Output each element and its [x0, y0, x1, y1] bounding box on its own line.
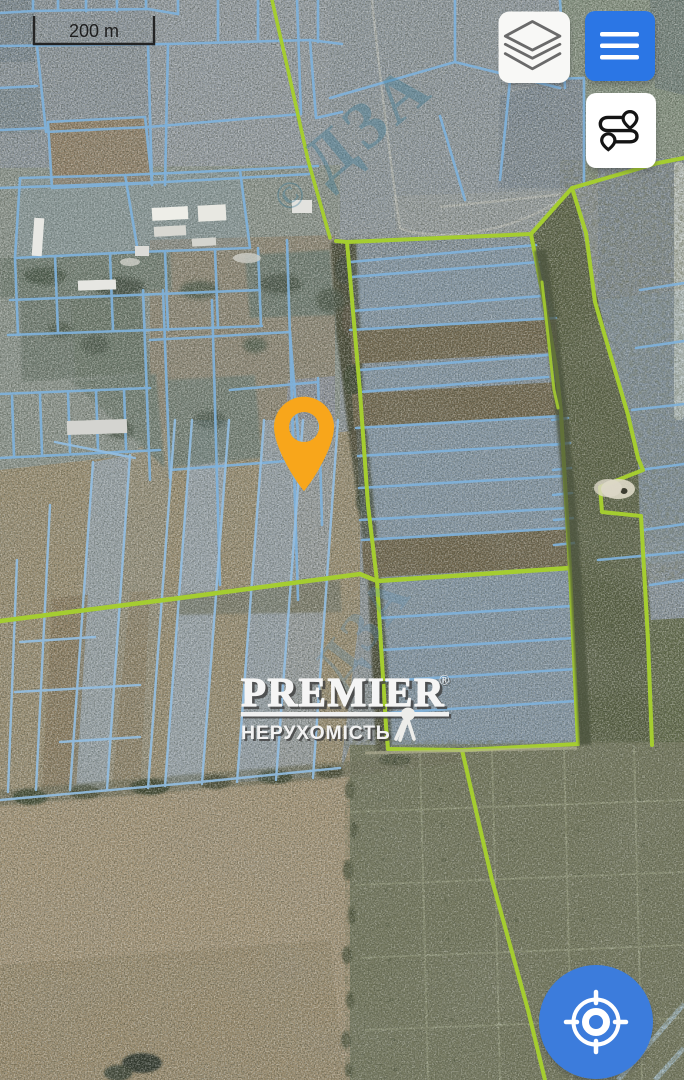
svg-text:НЕРУХОМІСТЬ: НЕРУХОМІСТЬ: [241, 722, 391, 744]
svg-text:200 m: 200 m: [69, 21, 119, 41]
svg-text:PREMIER: PREMIER: [241, 669, 445, 715]
svg-text:®: ®: [439, 674, 450, 689]
